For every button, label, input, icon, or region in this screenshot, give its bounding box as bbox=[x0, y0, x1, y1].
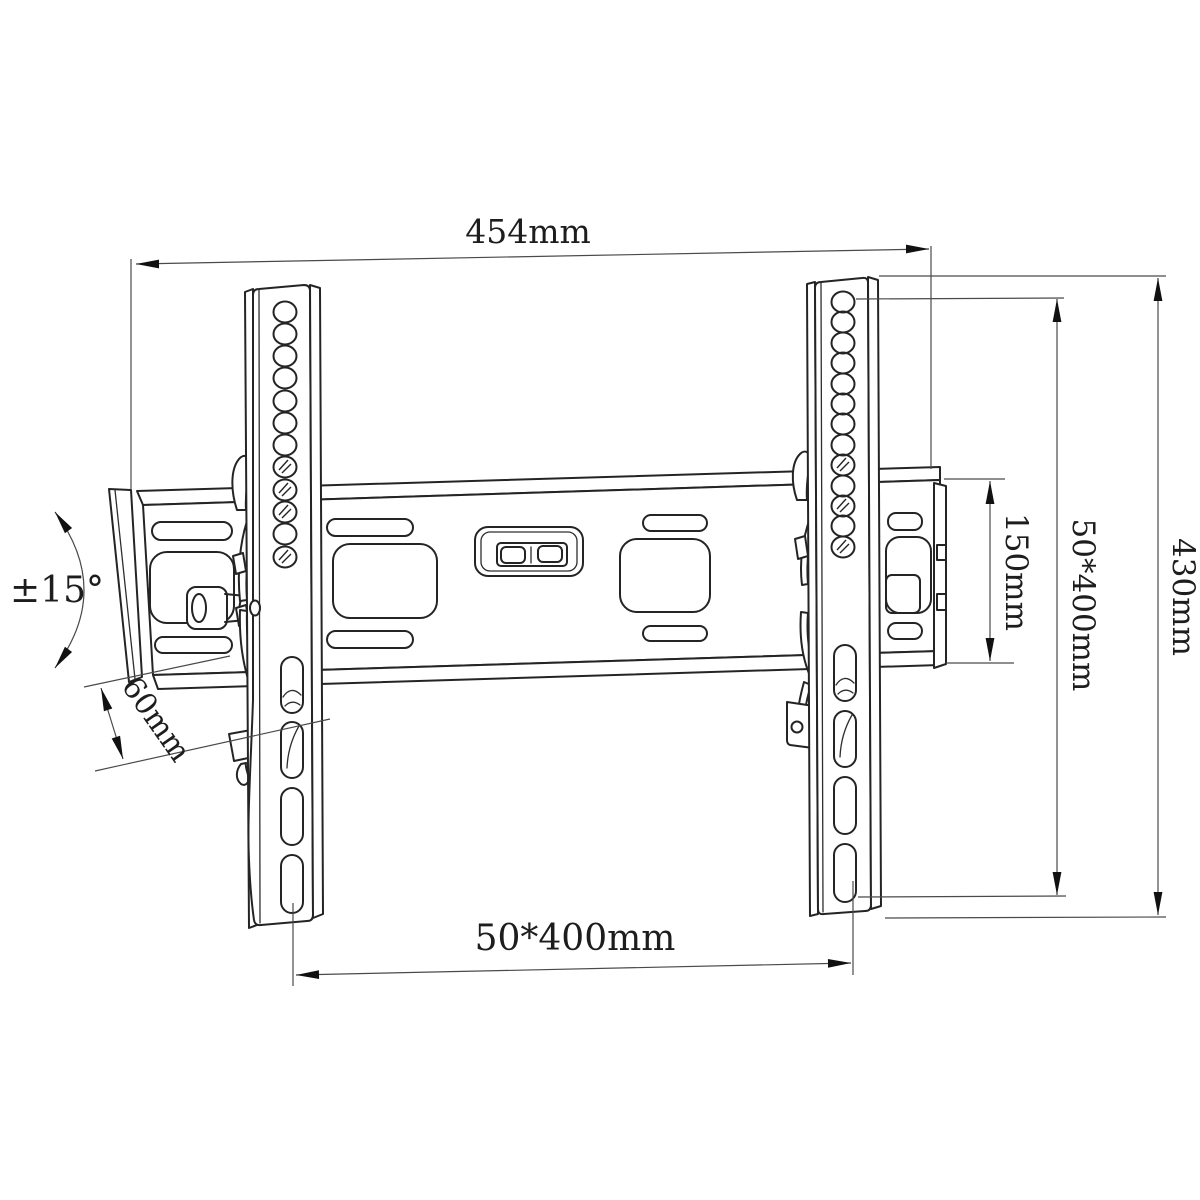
dimension-plate-height: 150mm bbox=[944, 479, 1034, 663]
technical-drawing-page: 454mm ±15° 60mm 150mm 50*400mm bbox=[0, 0, 1200, 1200]
dim-label-454: 454mm bbox=[465, 212, 591, 251]
dim-label-430: 430mm bbox=[1165, 538, 1200, 656]
wall-mount-diagram: 454mm ±15° 60mm 150mm 50*400mm bbox=[0, 0, 1200, 1200]
left-bracket-arm bbox=[229, 285, 323, 928]
bubble-level bbox=[475, 527, 583, 576]
dim-label-50x400-h: 50*400mm bbox=[475, 918, 676, 959]
blade-tab bbox=[233, 553, 246, 574]
dim-label-tilt: ±15° bbox=[10, 570, 104, 611]
dim-label-50x400-v: 50*400mm bbox=[1065, 519, 1101, 692]
bottom-hook bbox=[237, 763, 249, 785]
dimension-tilt-angle: ±15° bbox=[10, 509, 104, 670]
dimension-vesa-horizontal: 50*400mm bbox=[293, 881, 853, 986]
dim-label-150: 150mm bbox=[998, 513, 1034, 631]
plate-end-cap bbox=[934, 483, 946, 668]
pivot-bolt bbox=[250, 601, 260, 616]
blade-tab bbox=[795, 536, 808, 559]
